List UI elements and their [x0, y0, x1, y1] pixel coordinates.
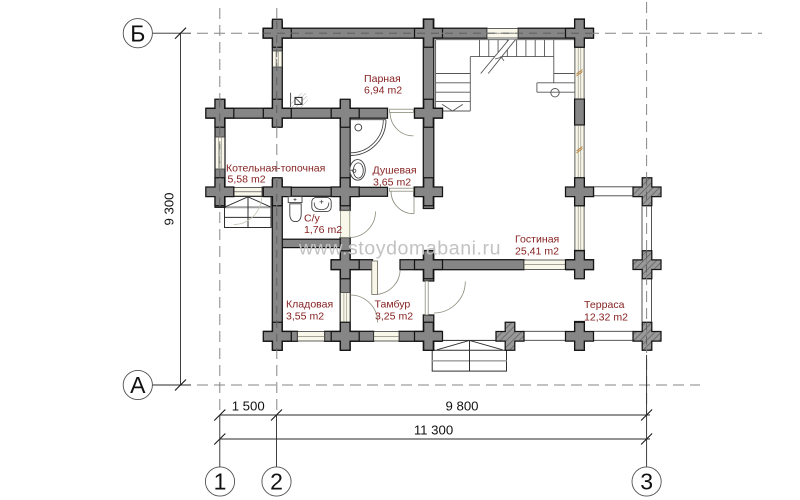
svg-text:1: 1: [214, 469, 227, 495]
svg-text:Терраса: Терраса: [584, 299, 625, 311]
svg-text:3,25 m2: 3,25 m2: [375, 311, 413, 323]
svg-text:www.stoydomabani.ru: www.stoydomabani.ru: [298, 237, 501, 259]
svg-text:Кладовая: Кладовая: [286, 299, 333, 311]
svg-text:Гостиная: Гостиная: [515, 234, 559, 246]
svg-text:5,58 m2: 5,58 m2: [228, 174, 266, 186]
svg-text:25,41 m2: 25,41 m2: [515, 246, 559, 258]
svg-text:3: 3: [640, 469, 653, 495]
svg-text:Парная: Парная: [364, 73, 401, 85]
svg-text:11 300: 11 300: [414, 423, 453, 438]
svg-text:9 800: 9 800: [445, 399, 478, 414]
svg-text:С/у: С/у: [304, 213, 321, 225]
svg-text:12,32 m2: 12,32 m2: [584, 312, 628, 324]
svg-text:2: 2: [270, 469, 283, 495]
svg-text:Тамбур: Тамбур: [375, 299, 411, 311]
svg-text:Котельная-топочная: Котельная-топочная: [226, 162, 325, 174]
svg-text:Б: Б: [130, 20, 145, 46]
svg-text:Душевая: Душевая: [373, 165, 417, 177]
svg-text:А: А: [130, 372, 146, 398]
svg-text:9 300: 9 300: [162, 192, 177, 225]
svg-text:3,65 m2: 3,65 m2: [373, 176, 411, 188]
svg-text:1 500: 1 500: [232, 399, 265, 414]
svg-text:1,76 m2: 1,76 m2: [304, 224, 342, 236]
svg-text:3,55 m2: 3,55 m2: [286, 311, 324, 323]
svg-text:6,94 m2: 6,94 m2: [364, 85, 402, 97]
